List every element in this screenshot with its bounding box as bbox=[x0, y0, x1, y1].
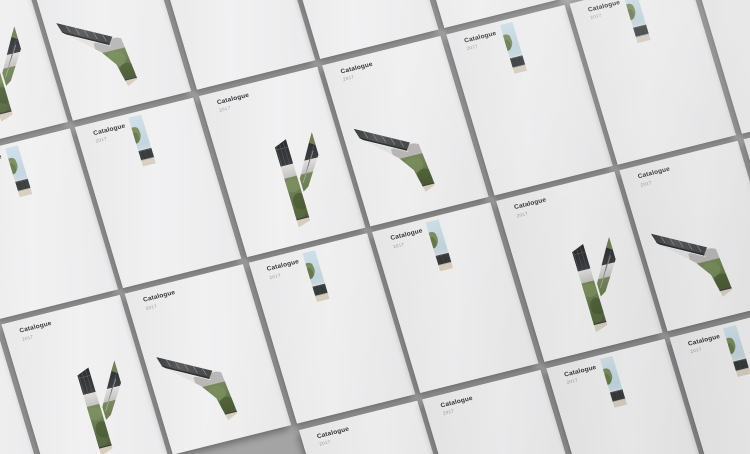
cover-title-block: Catalogue 2017 bbox=[687, 334, 723, 355]
cover-title-block: Catalogue 2017 bbox=[564, 365, 600, 386]
roof-ribbon-cutout bbox=[353, 113, 438, 206]
window-rect-cutout bbox=[499, 21, 527, 75]
cover-title-block: Catalogue 2017 bbox=[143, 290, 179, 311]
roof-ribbon-cutout bbox=[56, 8, 141, 101]
cover-title-block: Catalogue 2017 bbox=[514, 198, 550, 219]
logo-mark-cutout bbox=[569, 234, 634, 332]
cover-title-block: Catalogue 2017 bbox=[340, 61, 376, 82]
cover-grid: Catalogue 2017 bbox=[0, 0, 750, 454]
cover-title-block: Catalogue 2017 bbox=[440, 395, 476, 416]
cover-title-block: Catalogue 2017 bbox=[390, 228, 426, 249]
cover-title-block: Catalogue 2017 bbox=[587, 0, 623, 21]
cover-title-block: Catalogue 2017 bbox=[316, 426, 352, 447]
window-rect-cutout bbox=[599, 354, 627, 408]
window-rect-cutout bbox=[623, 0, 651, 44]
logo-mark-cutout bbox=[0, 24, 40, 122]
cover-title-block: Catalogue 2017 bbox=[637, 167, 673, 188]
roof-ribbon-cutout bbox=[156, 341, 241, 434]
cover-year: 2017 bbox=[0, 163, 5, 175]
cover-title-block: Catalogue 2017 bbox=[464, 31, 500, 52]
cover-title-block: Catalogue 2017 bbox=[0, 154, 5, 175]
mockup-scene: Catalogue 2017 bbox=[0, 0, 750, 454]
cover-title-block: Catalogue 2017 bbox=[266, 259, 302, 280]
logo-mark-cutout bbox=[74, 358, 139, 454]
roof-ribbon-cutout bbox=[453, 447, 538, 454]
cover-title-block: Catalogue 2017 bbox=[19, 321, 55, 342]
window-rect-cutout bbox=[4, 144, 32, 198]
logo-mark-cutout bbox=[272, 129, 337, 227]
window-rect-cutout bbox=[425, 218, 453, 272]
cover-title-block: Catalogue 2017 bbox=[93, 123, 129, 144]
window-rect-cutout bbox=[302, 249, 330, 303]
cover-title-block: Catalogue 2017 bbox=[216, 92, 252, 113]
window-rect-cutout bbox=[723, 324, 750, 378]
roof-ribbon-cutout bbox=[651, 218, 736, 311]
window-rect-cutout bbox=[128, 113, 156, 167]
